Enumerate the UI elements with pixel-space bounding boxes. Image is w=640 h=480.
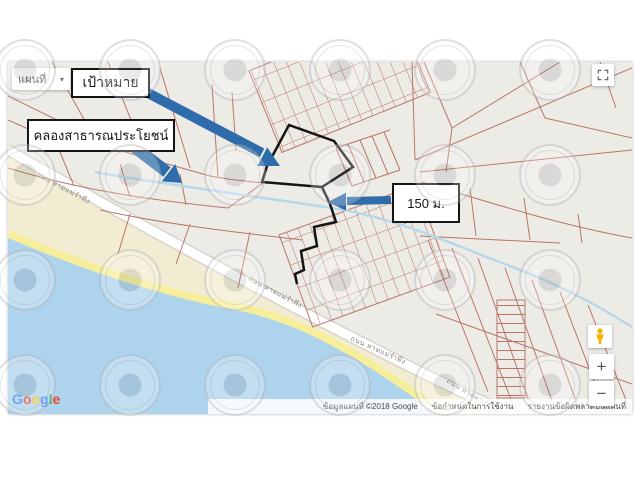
zoom-in-button[interactable]: +: [589, 354, 614, 379]
google-logo-letter: o: [31, 391, 40, 407]
screenshot-root: ถนน หาดแม่รำพึง ถนน หาดแม่รำพึง ถนน หาดแ…: [0, 0, 640, 480]
google-logo-letter: e: [52, 391, 60, 407]
map-canvas[interactable]: ถนน หาดแม่รำพึง ถนน หาดแม่รำพึง ถนน หาดแ…: [8, 62, 632, 414]
fullscreen-button[interactable]: [592, 64, 614, 86]
google-logo-letter: G: [12, 391, 23, 407]
fullscreen-icon: [596, 68, 610, 82]
map-graphics: ถนน หาดแม่รำพึง ถนน หาดแม่รำพึง ถนน หาดแ…: [8, 62, 632, 414]
map-type-dropdown[interactable]: แผนที่ ▾: [12, 68, 70, 90]
terms-link[interactable]: ข้อกำหนดในการใช้งาน: [432, 400, 514, 413]
chevron-down-icon: ▾: [60, 75, 64, 84]
distance-annotation-text: 150 ม.: [407, 193, 444, 214]
google-logo-letter: g: [40, 391, 49, 407]
target-annotation-label: เป้าหมาย: [71, 68, 150, 98]
plus-icon: +: [597, 357, 607, 377]
canal-annotation-text: คลองสาธารณประโยชน์: [34, 125, 169, 146]
pegman-button[interactable]: [588, 325, 612, 348]
canal-annotation-label: คลองสาธารณประโยชน์: [27, 119, 175, 152]
minus-icon: −: [597, 384, 607, 404]
pegman-icon: [593, 328, 607, 345]
google-logo[interactable]: Google: [12, 391, 60, 407]
distance-annotation-label: 150 ม.: [392, 183, 460, 223]
zoom-out-button[interactable]: −: [589, 381, 614, 406]
attribution-bar: ข้อมูลแผนที่ ©2018 Google ข้อกำหนดในการใ…: [208, 399, 632, 414]
map-data-attribution: ข้อมูลแผนที่ ©2018 Google: [323, 400, 418, 413]
target-annotation-text: เป้าหมาย: [82, 72, 138, 94]
map-type-label: แผนที่: [18, 70, 46, 88]
